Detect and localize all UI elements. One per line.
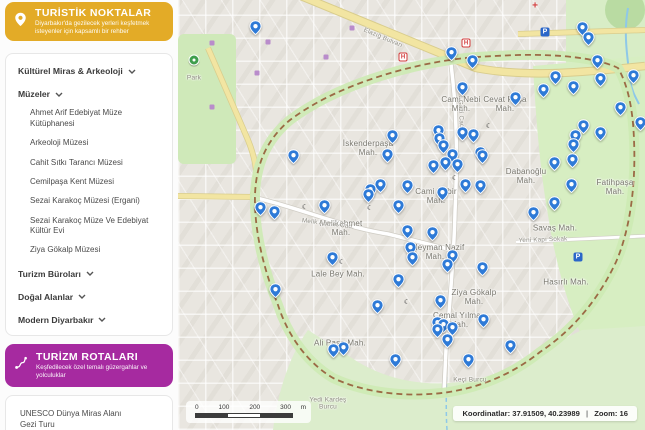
routes-card: UNESCO Dünya Miras Alanı Gezi TuruSuriçi… [5,395,173,430]
scale-tick: 0 [195,404,199,411]
pin-icon [455,81,470,96]
zoom-label: Zoom: [594,409,617,418]
category-label: Kültürel Miras & Arkeoloji [18,66,123,76]
map-label: Ziya Gökalp Mah. [452,288,497,306]
pin-icon [425,226,440,241]
pin-icon [613,101,628,116]
pin-icon [317,199,332,214]
map-marker[interactable] [385,129,400,144]
pin-icon [593,126,608,141]
scale-tick: 200 [249,404,260,411]
pin-icon [268,283,283,298]
chevron-down-icon [98,317,106,322]
pin-icon [633,116,645,131]
map-marker[interactable] [508,91,523,106]
map-marker[interactable] [400,224,415,239]
map-marker[interactable] [593,126,608,141]
parking-icon: P [574,253,583,262]
map-marker[interactable] [440,333,455,348]
pin-icon [433,294,448,309]
map-scale-bar: 0100200300 m [186,401,311,423]
map-marker[interactable] [268,283,283,298]
map-marker[interactable] [444,46,459,61]
pin-icon [426,159,441,174]
museum-item[interactable]: Cemilpaşa Kent Müzesi [30,177,158,187]
map-marker[interactable] [391,273,406,288]
pin-icon [458,178,473,193]
tourism-routes-subtitle: Keşfedilecek özel temalı güzergahlar ve … [36,364,165,380]
map-marker[interactable] [317,199,332,214]
tourist-points-title: TURİSTİK NOKTALAR [35,7,165,19]
map-canvas[interactable]: +HHPP☾☾☾☾☾☾☾Cami Nebi Mah.Cevat Paşa Mah… [178,0,645,430]
map-label: Savaş Mah. [533,223,577,232]
map-marker[interactable] [475,261,490,276]
pin-icon [465,54,480,69]
pin-icon [440,333,455,348]
scale-tick: 300 [280,404,291,411]
tourist-points-subtitle: Diyarbakır'da gezilecek yerleri keşfetme… [35,20,165,36]
route-icon [13,355,29,376]
chevron-down-icon [128,69,136,74]
shop-icon [266,40,271,45]
pin-icon [444,46,459,61]
pin-icon [547,156,562,171]
pin-icon [450,158,465,173]
map-label: Yedi Kardeş Burcu [309,397,346,412]
pin-icon [385,129,400,144]
hospital-h-icon: H [462,39,471,48]
location-pin-icon [13,12,28,32]
categories-card: Kültürel Miras & ArkeolojiMüzelerAhmet A… [5,53,173,336]
category-item-2[interactable]: Müzeler [18,89,162,99]
category-label: Modern Diyarbakır [18,315,93,325]
pin-icon [461,353,476,368]
museum-item[interactable]: Ziya Gökalp Müzesi [30,245,158,255]
chevron-down-icon [86,271,94,276]
pin-icon [391,199,406,214]
pin-icon [581,31,596,46]
map-marker[interactable] [581,31,596,46]
map-label: Keçi Burcu [453,376,486,383]
map-marker[interactable] [325,251,340,266]
pin-icon [286,149,301,164]
scale-tick: 100 [219,404,230,411]
pin-icon [475,149,490,164]
mosque-icon: ☾ [367,204,373,212]
map-marker[interactable] [526,206,541,221]
museum-list: Ahmet Arif Edebiyat Müze KütüphanesiArke… [18,108,162,256]
tourism-routes-header[interactable]: TURİZM ROTALARI Keşfedilecek özel temalı… [5,344,173,387]
museum-item[interactable]: Arkeoloji Müzesi [30,138,158,148]
tourism-routes-title: TURİZM ROTALARI [36,351,165,363]
map-marker[interactable] [248,20,263,35]
zoom-value: 16 [620,409,628,418]
category-label: Doğal Alanlar [18,292,73,302]
shop-icon [255,71,260,76]
pin-icon [564,178,579,193]
hospital-h-icon: H [399,53,408,62]
map-marker[interactable] [461,353,476,368]
map-marker[interactable] [440,258,455,273]
pin-icon [593,72,608,87]
map-marker[interactable] [455,81,470,96]
map-marker[interactable] [503,339,518,354]
pin-icon [626,69,641,84]
pin-icon [440,258,455,273]
pin-icon [536,83,551,98]
pin-icon [325,251,340,266]
map-marker[interactable] [361,188,376,203]
map-marker[interactable] [547,196,562,211]
pin-icon [566,138,581,153]
tourist-points-header[interactable]: TURİSTİK NOKTALAR Diyarbakır'da gezilece… [5,2,173,41]
map-marker[interactable] [633,116,645,131]
pin-icon [388,353,403,368]
map-label: Fatihpaşa Mah. [597,178,634,196]
map-marker[interactable] [564,178,579,193]
parking-icon: P [541,28,550,37]
pin-icon [508,91,523,106]
shop-icon [350,26,355,31]
pin-icon [253,201,268,216]
shop-icon [210,41,215,46]
scale-bar-line [195,413,293,418]
shop-icon [324,55,329,60]
map-label: Dabanoğlu Mah. [506,167,547,185]
museum-item[interactable]: Cahit Sıtkı Tarancı Müzesi [30,158,158,168]
pin-icon [370,299,385,314]
map-marker-layer: +HHPP☾☾☾☾☾☾☾Cami Nebi Mah.Cevat Paşa Mah… [178,0,645,430]
map-marker[interactable] [566,138,581,153]
map-marker[interactable] [473,179,488,194]
map-marker[interactable] [370,299,385,314]
map-marker[interactable] [475,149,490,164]
category-item-5[interactable]: Modern Diyarbakır [18,315,162,325]
category-item-1[interactable]: Kültürel Miras & Arkeoloji [18,66,162,76]
map-marker[interactable] [465,54,480,69]
pin-icon [547,196,562,211]
map-marker[interactable] [536,83,551,98]
pin-icon [526,206,541,221]
museum-item[interactable]: Ahmet Arif Edebiyat Müze Kütüphanesi [30,108,158,129]
map-marker[interactable] [425,226,440,241]
map-label: Lale Bey Mah. [311,269,365,278]
pin-icon [405,251,420,266]
pin-icon [267,205,282,220]
pin-icon [391,273,406,288]
route-item[interactable]: UNESCO Dünya Miras Alanı Gezi Turu [20,409,140,430]
map-marker[interactable] [433,294,448,309]
pin-icon [361,188,376,203]
map-marker[interactable] [450,158,465,173]
map-marker[interactable] [476,313,491,328]
pin-icon [476,313,491,328]
map-marker[interactable] [466,128,481,143]
map-label: Yeni Kapı Sokak [518,236,567,245]
map-label: Elazığ Bulvarı [362,27,403,50]
coords-label: Koordinatlar: [462,409,510,418]
map-marker[interactable] [391,199,406,214]
map-marker[interactable] [458,178,473,193]
pin-icon [380,148,395,163]
pin-icon [566,80,581,95]
pin-icon [326,343,341,358]
mosque-icon: ☾ [486,122,492,130]
pin-icon [503,339,518,354]
sidebar: TURİSTİK NOKTALAR Diyarbakır'da gezilece… [0,0,178,430]
chevron-down-icon [78,294,86,299]
map-marker[interactable] [400,179,415,194]
pin-icon [466,128,481,143]
mosque-icon: ☾ [404,298,410,306]
map-marker[interactable] [565,153,580,168]
museum-item[interactable]: Sezai Karakoç Müze Ve Edebiyat Kültür Ev… [30,216,158,237]
category-item-3[interactable]: Turizm Büroları [18,269,162,279]
museum-item[interactable]: Sezai Karakoç Müzesi (Ergani) [30,196,158,206]
map-status-bar: Koordinatlar: 37.91509, 40.23989 | Zoom:… [453,406,637,421]
map-marker[interactable] [435,186,450,201]
pin-icon [435,186,450,201]
map-marker[interactable] [253,201,268,216]
category-item-4[interactable]: Doğal Alanlar [18,292,162,302]
shop-icon [210,105,215,110]
map-marker[interactable] [626,69,641,84]
coords-value: 37.91509, 40.23989 [512,409,580,418]
map-marker[interactable] [547,156,562,171]
category-label: Turizm Büroları [18,269,81,279]
map-marker[interactable] [326,343,341,358]
pin-icon [400,179,415,194]
map-marker[interactable] [405,251,420,266]
map-marker[interactable] [566,80,581,95]
map-marker[interactable] [286,149,301,164]
hospital-cross-icon: + [532,1,538,12]
map-marker[interactable] [593,72,608,87]
chevron-down-icon [55,92,63,97]
map-label: Park [187,74,201,81]
map-marker[interactable] [590,54,605,69]
pin-icon [475,261,490,276]
pin-icon [400,224,415,239]
status-separator: | [586,409,588,418]
map-marker[interactable] [613,101,628,116]
pin-icon [590,54,605,69]
category-label: Müzeler [18,89,50,99]
scale-unit: m [301,404,306,411]
mosque-icon: ☾ [302,203,308,211]
map-marker[interactable] [267,205,282,220]
park-pin-icon [189,55,200,66]
pin-icon [565,153,580,168]
pin-icon [473,179,488,194]
map-marker[interactable] [388,353,403,368]
map-marker[interactable] [426,159,441,174]
mosque-icon: ☾ [339,258,345,266]
map-marker[interactable] [380,148,395,163]
map-label: Hasırlı Mah. [543,277,589,286]
pin-icon [248,20,263,35]
